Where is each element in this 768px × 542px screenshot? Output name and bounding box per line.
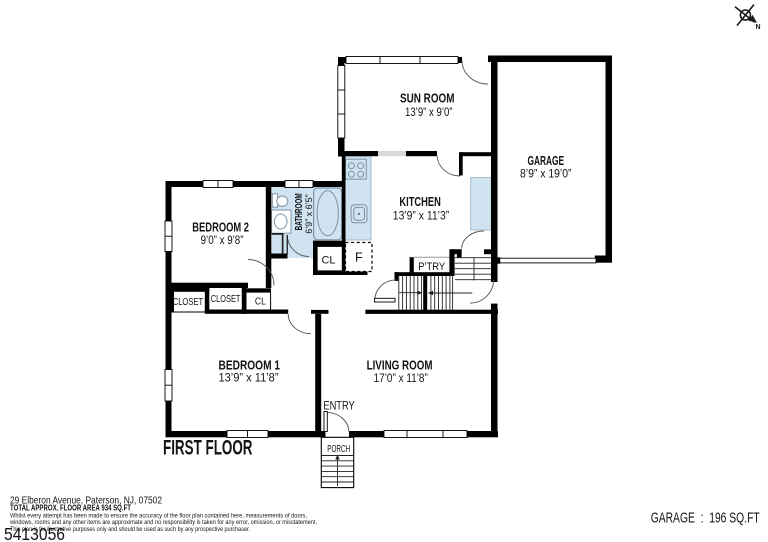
svg-text:N: N [756,24,761,31]
svg-text:13’9” x 11’8”: 13’9” x 11’8” [219,373,279,385]
svg-text:CLOSET: CLOSET [211,294,241,305]
svg-text:SUN ROOM: SUN ROOM [400,91,455,106]
svg-text:13’9” x 9’0”: 13’9” x 9’0” [405,107,453,119]
svg-text:BEDROOM 2: BEDROOM 2 [192,219,249,234]
svg-text:GARAGE: GARAGE [528,153,565,168]
svg-text:13’9” x 11’3”: 13’9” x 11’3” [393,211,450,223]
svg-text:CLOSET: CLOSET [173,297,204,308]
svg-text:F: F [355,251,363,265]
svg-text:TOTAL APPROX. FLOOR AREA 934 S: TOTAL APPROX. FLOOR AREA 934 SQ.FT [10,503,132,513]
svg-text:BEDROOM 1: BEDROOM 1 [219,358,281,373]
svg-text:GARAGE : 196 SQ.FT: GARAGE : 196 SQ.FT [651,510,760,527]
svg-text:KITCHEN: KITCHEN [399,194,441,209]
svg-text:FIRST FLOOR: FIRST FLOOR [163,436,253,460]
svg-text:CL: CL [322,255,336,267]
svg-text:5413056: 5413056 [4,524,65,542]
svg-text:9’0” x 9’8”: 9’0” x 9’8” [201,235,244,247]
svg-text:17’0” x 11’8”: 17’0” x 11’8” [374,373,428,385]
svg-text:LIVING ROOM: LIVING ROOM [367,358,433,373]
svg-text:8’9” x 19’0”: 8’9” x 19’0” [520,169,572,181]
svg-text:CL: CL [255,297,266,308]
svg-text:6’9” x 6’5”: 6’9” x 6’5” [304,194,314,233]
svg-text:PORCH: PORCH [327,443,350,455]
svg-text:P’TRY: P’TRY [418,261,445,273]
svg-text:ENTRY: ENTRY [323,399,354,413]
